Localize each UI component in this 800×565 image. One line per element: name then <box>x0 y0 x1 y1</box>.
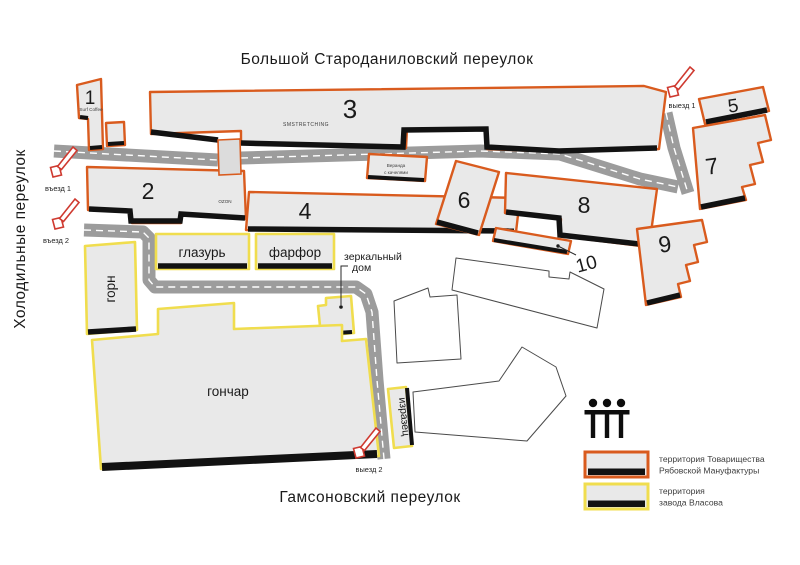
building-10-number: 10 <box>574 252 600 278</box>
building-6-number: 6 <box>458 187 471 213</box>
legend-manufactory-line2: Рябовской Мануфактуры <box>659 466 759 476</box>
context-buildings <box>394 258 604 441</box>
mirror-house-pointer-dot <box>339 305 343 309</box>
legend-swatch-manufactory-edge <box>588 469 645 476</box>
veranda-label-line2: с качелями <box>384 170 408 175</box>
building-3-connector <box>218 139 241 175</box>
building-1-number: 1 <box>85 88 96 109</box>
building-gorn-edge <box>88 329 136 332</box>
site-plan-svg: 1 Surf Coffee 2 OZON 3 SMSTRETCHING 4 5 … <box>0 0 800 565</box>
building-1-tenant: Surf Coffee <box>79 107 103 112</box>
context-building-3 <box>413 347 566 441</box>
building-4-number: 4 <box>299 198 312 224</box>
building-2-number: 2 <box>142 178 155 204</box>
building-3-number: 3 <box>343 94 357 124</box>
manufactory-logo-icon <box>585 399 630 438</box>
building-1-annex-edge <box>108 143 124 144</box>
mirror-house-label-line2: дом <box>352 262 371 274</box>
legend-item-vlasov: территория завода Власова <box>585 484 723 509</box>
building-9-shape <box>637 220 707 305</box>
building-8-number: 8 <box>578 192 591 218</box>
exit-1-arrow-icon <box>668 67 695 97</box>
street-top-label: Большой Староданиловский переулок <box>241 51 534 68</box>
legend-vlasov-line1: территория <box>659 486 705 496</box>
exit-1-label: выезд 1 <box>669 101 696 110</box>
building-gonchar-label: гончар <box>207 384 249 399</box>
street-bottom-label: Гамсоновский переулок <box>279 489 460 506</box>
context-building-2 <box>394 288 461 363</box>
building-gorn-label: горн <box>103 275 118 302</box>
legend-item-manufactory: территория Товарищества Рябовской Мануфа… <box>585 452 765 477</box>
building-3-tenant: SMSTRETCHING <box>283 122 329 128</box>
building-glazur-label: глазурь <box>178 245 225 260</box>
entrance-2-arrow-icon <box>53 199 80 229</box>
legend-swatch-vlasov-edge <box>588 501 645 508</box>
site-map: 1 Surf Coffee 2 OZON 3 SMSTRETCHING 4 5 … <box>0 0 800 565</box>
building-farfor-label: фарфор <box>269 245 321 260</box>
legend: территория Товарищества Рябовской Мануфа… <box>585 399 765 509</box>
veranda-label-line1: Веранда <box>387 163 406 168</box>
entrance-1-label: въезд 1 <box>45 184 71 193</box>
legend-manufactory-line1: территория Товарищества <box>659 454 765 464</box>
entrance-2-label: въезд 2 <box>43 236 69 245</box>
building-2-tenant: OZON <box>218 199 231 204</box>
street-left-label: Холодильные переулок <box>12 149 29 329</box>
exit-2-label: выезд 2 <box>356 465 383 474</box>
legend-vlasov-line2: завода Власова <box>659 498 723 508</box>
